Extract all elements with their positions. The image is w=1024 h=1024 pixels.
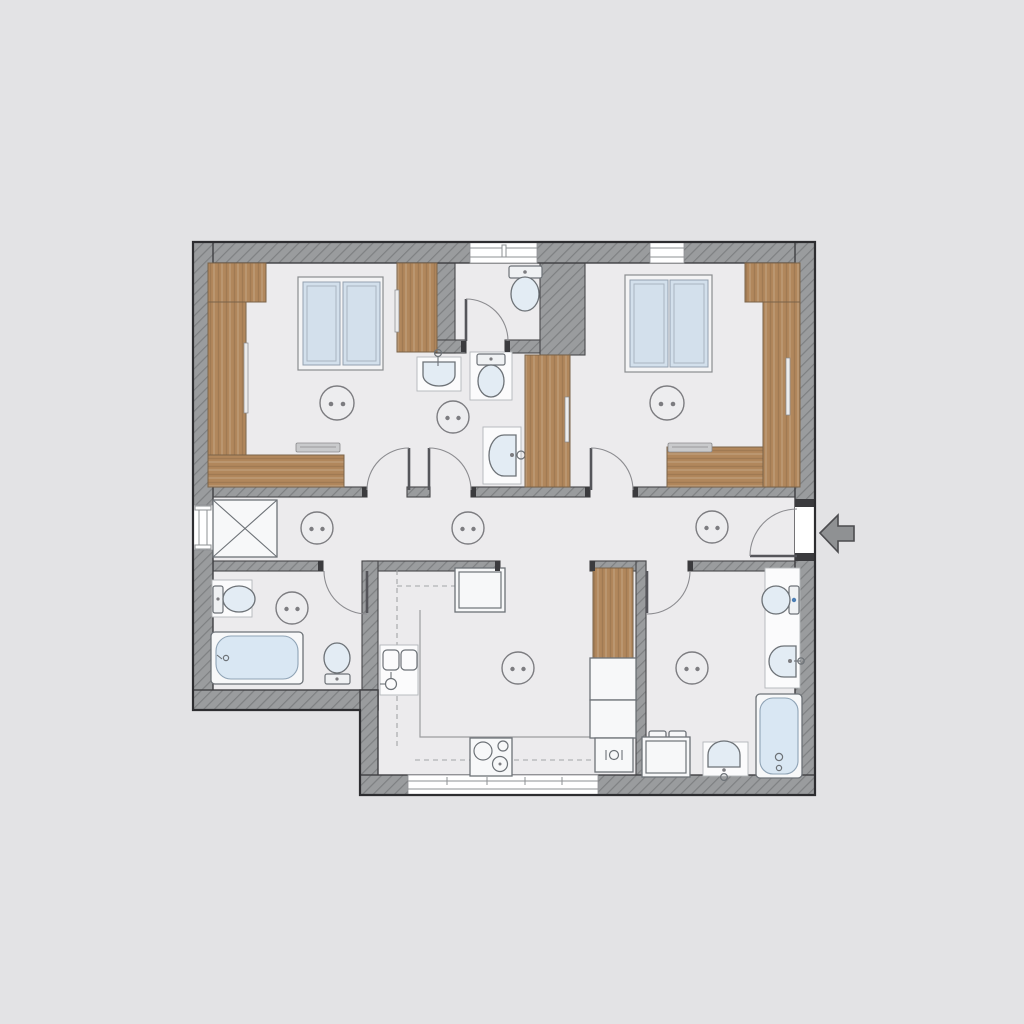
ceiling-light xyxy=(320,386,354,420)
window-pane xyxy=(630,280,668,367)
window-left-hallway xyxy=(193,505,213,550)
wall-wc-bottom-right xyxy=(505,340,540,353)
entrance-opening xyxy=(795,499,815,561)
vanity-basin-alcove xyxy=(483,427,525,484)
wardrobe-right-block xyxy=(397,263,437,352)
wall-bedrooms-bottom-b xyxy=(471,487,590,497)
bathtub xyxy=(756,694,802,778)
ceiling-light xyxy=(301,512,333,544)
wardrobe-right-handle-slit xyxy=(395,290,399,332)
wardrobe-column xyxy=(208,302,246,455)
bathtub xyxy=(211,632,303,684)
wall-bathL-bottom xyxy=(193,690,378,710)
wall-bathL-kitchen xyxy=(362,561,378,710)
wall-hall-bottom-a xyxy=(213,561,323,571)
double-window-unit xyxy=(625,275,712,372)
wall-bedrooms-bottom-c xyxy=(633,487,795,497)
tall-wardrobe-handle-slit xyxy=(565,397,569,442)
floor-plan-drawing xyxy=(0,0,1024,1024)
desk xyxy=(208,455,344,487)
ceiling-light xyxy=(276,592,308,624)
fridge xyxy=(455,568,505,612)
basin-unit xyxy=(703,741,748,780)
base-cabinet-lower xyxy=(590,700,636,738)
window-top-wc xyxy=(470,242,537,263)
oven-appliance xyxy=(595,738,633,772)
ceiling-light xyxy=(502,652,534,684)
floor-plan-canvas xyxy=(0,0,1024,1024)
wardrobe-handle-slit xyxy=(786,358,790,415)
bidet xyxy=(324,643,350,684)
window-top-bedroomR xyxy=(650,242,684,263)
double-sink xyxy=(380,645,418,695)
ceiling-light xyxy=(650,386,684,420)
washing-machine xyxy=(642,731,690,777)
bathtub-basin xyxy=(760,698,798,774)
desk xyxy=(667,447,763,487)
wardrobe-top-block xyxy=(745,263,800,302)
tall-cabinet xyxy=(593,568,633,658)
ceiling-light xyxy=(452,512,484,544)
toilet xyxy=(762,586,799,614)
window-kitchen-bottom xyxy=(408,775,598,795)
wardrobe-column xyxy=(763,302,800,487)
toilet xyxy=(470,352,512,400)
cooktop xyxy=(470,738,512,776)
wall-wc-bedroomR xyxy=(540,263,585,355)
laptop-on-desk xyxy=(668,443,712,452)
double-window-unit xyxy=(298,277,383,370)
ceiling-light xyxy=(437,401,469,433)
wardrobe-handle-slit xyxy=(244,343,248,413)
window-pane xyxy=(303,282,340,365)
ceiling-light xyxy=(696,511,728,543)
wall-door-stub xyxy=(407,487,430,497)
laptop-on-desk xyxy=(296,443,340,452)
tall-wardrobe-mid xyxy=(525,355,570,487)
toilet xyxy=(212,580,255,617)
wardrobe-top-block xyxy=(208,263,266,302)
ceiling-light xyxy=(676,652,708,684)
window-pane xyxy=(343,282,380,365)
base-cabinet-upper xyxy=(590,658,636,700)
x-closet xyxy=(213,500,277,557)
window-pane xyxy=(670,280,708,367)
wall-bedrooms-bottom-a xyxy=(193,487,367,497)
